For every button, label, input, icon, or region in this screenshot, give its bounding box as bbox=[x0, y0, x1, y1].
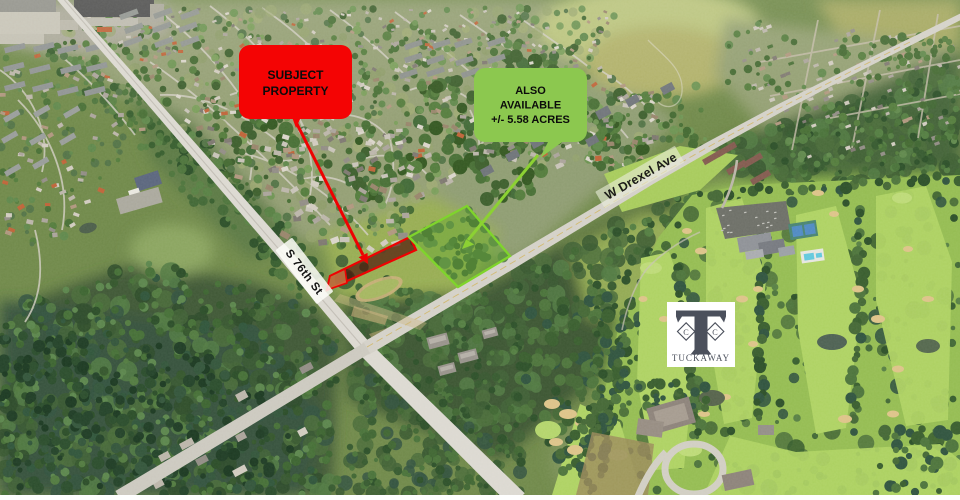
svg-text:PROPERTY: PROPERTY bbox=[262, 84, 328, 98]
svg-text:ALSO: ALSO bbox=[515, 85, 546, 97]
svg-text:SUBJECT: SUBJECT bbox=[267, 68, 324, 82]
